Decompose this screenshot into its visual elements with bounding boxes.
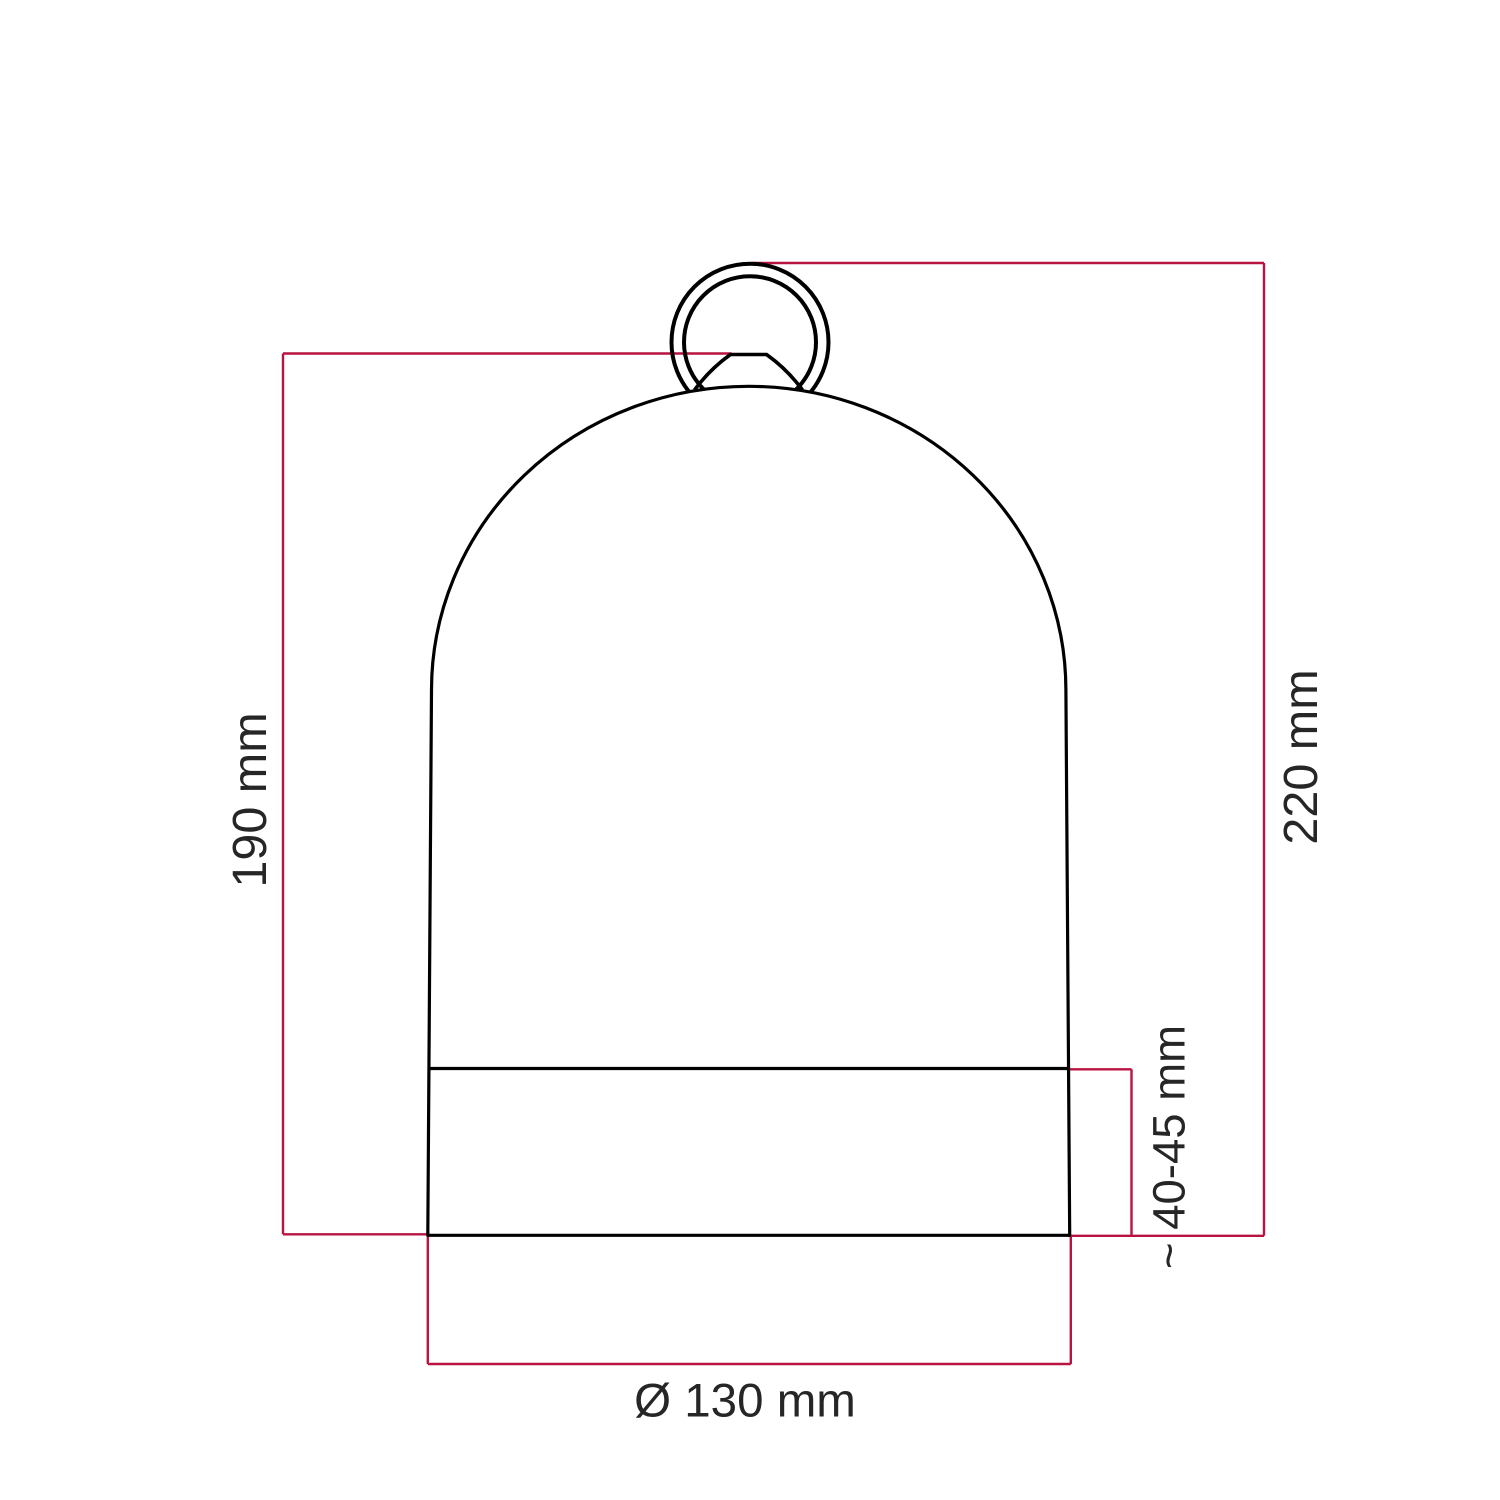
svg-text:220 mm: 220 mm <box>1274 669 1328 844</box>
svg-text:Ø 130 mm: Ø 130 mm <box>634 1375 856 1428</box>
svg-text:190 mm: 190 mm <box>223 712 277 887</box>
svg-text:~ 40-45 mm: ~ 40-45 mm <box>1144 1025 1195 1269</box>
